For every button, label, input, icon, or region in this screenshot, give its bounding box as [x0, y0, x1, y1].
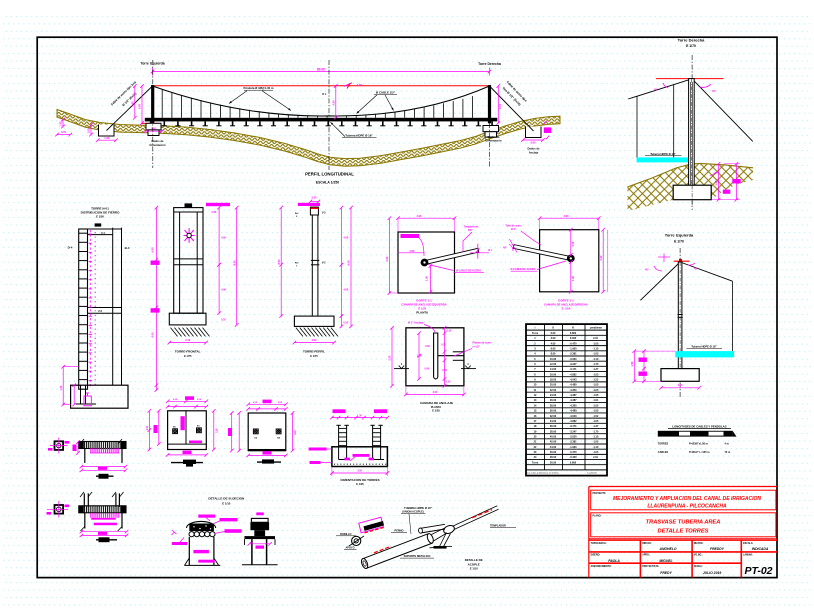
svg-text:20.00: 20.00 [550, 384, 557, 387]
svg-text:ANGHELO: ANGHELO [659, 547, 677, 551]
svg-text:-1.52: -1.52 [593, 415, 599, 418]
svg-text:D L: D L [322, 92, 327, 96]
svg-text:Cimentación: Cimentación [149, 143, 165, 147]
svg-text:Ref: Ref [295, 263, 299, 265]
svg-text:CIMENTACION DE TORRES: CIMENTACION DE TORRES [340, 478, 379, 482]
svg-text:4.50: 4.50 [331, 100, 335, 106]
svg-text:E 1/75: E 1/75 [310, 354, 318, 358]
svg-text:V-2: V-2 [98, 309, 102, 313]
svg-text:4.00: 4.00 [343, 289, 348, 292]
svg-text:Ø CABLE 1/2": Ø CABLE 1/2" [376, 91, 396, 95]
svg-text:0.400: 0.400 [570, 337, 577, 340]
svg-text:24.00: 24.00 [550, 394, 557, 397]
svg-text:FECHA:: FECHA: [694, 565, 703, 568]
svg-text:2.31: 2.31 [593, 456, 598, 459]
svg-text:4.00: 4.00 [151, 332, 155, 338]
svg-text:-1.05: -1.05 [593, 420, 599, 423]
svg-text:0.800: 0.800 [570, 461, 577, 464]
svg-text:2.00: 2.00 [386, 256, 389, 261]
svg-text:E 1/10: E 1/10 [470, 566, 478, 570]
svg-text:34.00: 34.00 [550, 420, 557, 423]
svg-text:38.00: 38.00 [550, 430, 557, 433]
svg-text:4.50: 4.50 [221, 237, 226, 240]
svg-text:-1.900: -1.900 [569, 446, 577, 449]
svg-text:PROYECTO:: PROYECTO: [593, 493, 607, 495]
svg-text:4.50: 4.50 [343, 237, 348, 240]
svg-text:-4.387: -4.387 [569, 394, 577, 397]
svg-text:8.50: 8.50 [232, 260, 236, 266]
svg-text:2.00: 2.00 [417, 215, 422, 218]
svg-text:-1.27: -1.27 [593, 425, 599, 428]
svg-text:Anclaje: Anclaje [529, 150, 539, 154]
svg-text:1.00: 1.00 [417, 355, 422, 358]
svg-text:-1.10: -1.10 [593, 347, 599, 350]
svg-text:V-1: V-1 [101, 231, 105, 235]
svg-text:0.30: 0.30 [211, 211, 216, 214]
svg-text:DETALLE DE SUJECION: DETALLE DE SUJECION [208, 497, 245, 501]
svg-text:45°: 45° [645, 268, 649, 272]
svg-text:1.20: 1.20 [104, 136, 110, 140]
svg-text:46.00: 46.00 [550, 451, 557, 454]
svg-text:-0.470: -0.470 [569, 451, 577, 454]
svg-text:Platina de acero: Platina de acero [473, 342, 493, 345]
svg-text:E: 1/50: E: 1/50 [562, 307, 571, 311]
svg-text:CORTE 1-1: CORTE 1-1 [416, 298, 432, 302]
svg-text:-1.05: -1.05 [593, 389, 599, 392]
svg-text:REVISO:: REVISO: [694, 543, 704, 545]
svg-text:4.50: 4.50 [357, 83, 363, 87]
svg-text:-4.480: -4.480 [569, 384, 577, 387]
svg-text:0.00: 0.00 [551, 332, 556, 335]
svg-text:5.00: 5.00 [498, 103, 502, 109]
svg-text:1.30: 1.30 [357, 415, 362, 418]
svg-text:22.00: 22.00 [550, 389, 557, 392]
svg-text:-1.05: -1.05 [593, 384, 599, 387]
svg-text:40.00: 40.00 [550, 435, 557, 438]
svg-text:-0.400: -0.400 [569, 456, 577, 459]
svg-text:APRO.:: APRO.: [642, 554, 650, 557]
svg-text:Torre Derecha: Torre Derecha [678, 37, 706, 42]
svg-text:0.20: 0.20 [446, 381, 451, 384]
svg-text:0.55: 0.55 [221, 320, 226, 322]
svg-text:-1.10: -1.10 [593, 435, 599, 438]
svg-text:Cimentación: Cimentación [485, 139, 501, 143]
svg-text:2.00: 2.00 [312, 339, 317, 342]
svg-text:-4.350: -4.350 [569, 404, 577, 407]
svg-text:-3.171: -3.171 [569, 425, 577, 428]
svg-text:TORRES: TORRES [658, 442, 669, 445]
svg-text:1.00: 1.00 [426, 276, 429, 281]
svg-text:0.75: 0.75 [572, 241, 575, 246]
svg-text:E 1/75: E 1/75 [184, 354, 192, 358]
svg-text:-1.70: -1.70 [593, 363, 599, 366]
svg-text:CAMARA DE ANCLAJE IZQUIERDA: CAMARA DE ANCLAJE IZQUIERDA [401, 303, 446, 307]
svg-text:2.10: 2.10 [185, 339, 190, 342]
svg-text:CORTE 1-1: CORTE 1-1 [558, 298, 574, 302]
svg-text:-1.01: -1.01 [593, 399, 599, 402]
svg-text:45°: 45° [503, 245, 507, 249]
svg-text:48.00: 48.00 [550, 456, 557, 459]
svg-text:45°: 45° [694, 267, 698, 271]
svg-text:LONGITUDES DE CABLES Y PENDOLA: LONGITUDES DE CABLES Y PENDOLAS [672, 425, 726, 429]
svg-text:-0.470: -0.470 [569, 342, 577, 345]
svg-text:-1.70: -1.70 [593, 430, 599, 433]
svg-text:TRASVASE TUBERIA AREA: TRASVASE TUBERIA AREA [646, 520, 721, 526]
svg-text:32.00: 32.00 [550, 415, 557, 418]
svg-text:TORRE-FRONTAL: TORRE-FRONTAL [175, 350, 201, 354]
svg-text:PLANTA: PLANTA [431, 405, 441, 409]
svg-text:ESCALA 1/250: ESCALA 1/250 [316, 180, 339, 184]
svg-text:18.00: 18.00 [550, 379, 557, 382]
svg-text:Lo=50.00: Lo=50.00 [587, 472, 597, 474]
svg-text:5/8": 5/8" [468, 229, 472, 232]
svg-text:-1.10: -1.10 [593, 446, 599, 449]
svg-text:1.50: 1.50 [60, 121, 63, 126]
svg-text:P=Ø3/8"x1.80 m: P=Ø3/8"x1.80 m [689, 442, 709, 445]
svg-text:2.31: 2.31 [593, 337, 598, 340]
svg-text:2.00: 2.00 [600, 255, 603, 260]
svg-text:-3.247: -3.247 [569, 363, 577, 366]
svg-text:-1.05: -1.05 [593, 404, 599, 407]
svg-text:Dados de: Dados de [151, 139, 164, 143]
svg-text:INDICADA: INDICADA [752, 547, 769, 551]
svg-text:VO.BO.:: VO.BO.: [694, 555, 703, 557]
svg-text:-4.480: -4.480 [569, 410, 577, 413]
svg-text:SOPORTE METALICO: SOPORTE METALICO [404, 554, 431, 558]
svg-text:-3.247: -3.247 [569, 430, 577, 433]
svg-text:-1.27: -1.27 [593, 368, 599, 371]
svg-text:70 m: 70 m [725, 451, 731, 454]
svg-text:6.00: 6.00 [551, 347, 556, 350]
svg-text:E 1/10: E 1/10 [222, 501, 231, 505]
svg-text:E 1/70: E 1/70 [674, 240, 684, 244]
svg-text:0.60: 0.60 [424, 367, 429, 370]
svg-text:Ø 1" Anclaje: Ø 1" Anclaje [408, 321, 424, 325]
svg-text:LAMINA:: LAMINA: [743, 554, 753, 557]
svg-text:1.90: 1.90 [216, 428, 218, 433]
svg-text:JULIO 2019: JULIO 2019 [703, 571, 722, 575]
svg-text:-1.05: -1.05 [593, 410, 599, 413]
svg-text:DISEÑO:: DISEÑO: [591, 554, 601, 557]
svg-text:TUBERIA HDPE Ø 16": TUBERIA HDPE Ø 16" [404, 506, 433, 510]
svg-text:2.00: 2.00 [564, 215, 569, 218]
svg-text:PERFIL LONGITUDINAL: PERFIL LONGITUDINAL [305, 172, 354, 177]
svg-text:2.10: 2.10 [678, 384, 683, 387]
svg-text:0.60: 0.60 [425, 345, 430, 348]
svg-text:-4.043: -4.043 [569, 415, 577, 418]
svg-text:-1.05: -1.05 [593, 373, 599, 376]
svg-text:10.00: 10.00 [550, 358, 557, 361]
svg-text:-1.05: -1.05 [593, 342, 599, 345]
svg-text:Tubería HDPE Ø 16": Tubería HDPE Ø 16" [345, 134, 373, 138]
svg-text:44.00: 44.00 [550, 446, 557, 449]
svg-text:D-4: D-4 [68, 246, 73, 250]
svg-text:CAMARA DE ANCLAJE DERECHA: CAMARA DE ANCLAJE DERECHA [544, 303, 588, 307]
svg-text:0.75: 0.75 [442, 369, 447, 372]
svg-text:0.50: 0.50 [61, 131, 66, 134]
svg-text:-4.350: -4.350 [569, 389, 577, 392]
svg-text:-1.05: -1.05 [593, 353, 599, 356]
svg-text:8.50: 8.50 [277, 259, 281, 265]
svg-text:Yi: Yi [572, 326, 575, 330]
svg-text:PAOLA: PAOLA [608, 559, 620, 563]
svg-text:Tubería HDPE Ø 16": Tubería HDPE Ø 16" [650, 152, 676, 156]
svg-text:Las cotas y distancias en metr: Las cotas y distancias en metros [527, 471, 560, 474]
svg-text:4.50: 4.50 [151, 247, 155, 253]
svg-text:CAMARA DE ANCLAJE: CAMARA DE ANCLAJE [420, 401, 453, 405]
svg-text:28.00: 28.00 [550, 404, 557, 407]
svg-text:Ø 4": Ø 4" [511, 228, 516, 231]
svg-text:(UNION ACOPLE): (UNION ACOPLE) [402, 510, 424, 514]
svg-text:2.00: 2.00 [357, 470, 362, 473]
svg-text:-4.387: -4.387 [569, 399, 577, 402]
svg-text:DETALLE TORRES: DETALLE TORRES [658, 529, 709, 535]
svg-text:E 1/70: E 1/70 [686, 44, 696, 48]
svg-text:DIBUJO:: DIBUJO: [642, 543, 652, 545]
svg-text:DISTRIBUCION DE FIERRO: DISTRIBUCION DE FIERRO [81, 210, 121, 214]
svg-text:pendiente: pendiente [590, 327, 602, 330]
svg-text:0.60: 0.60 [410, 250, 415, 253]
svg-text:50.00: 50.00 [550, 461, 557, 464]
svg-text:PLANTA: PLANTA [416, 310, 429, 314]
svg-text:-4.043: -4.043 [569, 379, 577, 382]
svg-text:12.00: 12.00 [550, 363, 557, 366]
svg-text:80.00: 80.00 [317, 67, 325, 71]
svg-text:TORRE-PERFIL: TORRE-PERFIL [303, 350, 325, 354]
svg-text:45°: 45° [712, 89, 716, 93]
svg-text:8.00: 8.00 [551, 353, 556, 356]
svg-text:ESCALA:: ESCALA: [743, 542, 753, 545]
svg-text:2.00: 2.00 [551, 337, 556, 340]
svg-text:Péndola Ø 3/8@1.00 m: Péndola Ø 3/8@1.00 m [244, 86, 274, 90]
svg-text:FREDY: FREDY [660, 571, 672, 575]
svg-text:Ref: Ref [295, 213, 299, 215]
svg-text:TEMPLADOR: TEMPLADOR [490, 525, 506, 528]
svg-text:0.55: 0.55 [344, 323, 349, 325]
svg-text:-1.05: -1.05 [593, 394, 599, 397]
svg-text:TOPOGRAFIA:: TOPOGRAFIA: [591, 542, 607, 545]
svg-text:RODILLO: RODILLO [340, 533, 351, 536]
svg-text:0.30: 0.30 [312, 197, 317, 200]
svg-text:Ø CABLE DE ACERO: Ø CABLE DE ACERO [456, 270, 481, 273]
svg-text:36.00: 36.00 [550, 425, 557, 428]
svg-text:X: X [552, 326, 554, 330]
svg-text:-1.10: -1.10 [593, 358, 599, 361]
svg-text:4.00: 4.00 [551, 342, 556, 345]
svg-text:Torre Derecha: Torre Derecha [478, 62, 501, 66]
svg-text:5.00: 5.00 [138, 103, 142, 109]
svg-text:2.00: 2.00 [433, 391, 438, 394]
svg-text:1.50: 1.50 [60, 385, 63, 390]
svg-text:1.00: 1.00 [572, 276, 575, 281]
svg-text:0.30: 0.30 [447, 329, 452, 332]
svg-text:B-4: B-4 [125, 246, 130, 250]
svg-text:1.90: 1.90 [295, 430, 297, 435]
svg-text:PLANO:: PLANO: [593, 515, 602, 518]
svg-text:E 1/25: E 1/25 [432, 408, 440, 412]
svg-text:-4.882: -4.882 [569, 420, 577, 423]
svg-text:PERNO: PERNO [395, 530, 404, 533]
svg-text:1.00: 1.00 [87, 128, 91, 134]
svg-text:-2.381: -2.381 [569, 441, 577, 444]
svg-text:1.90: 1.90 [147, 425, 149, 430]
svg-text:4.50: 4.50 [130, 101, 134, 107]
svg-text:-3.020: -3.020 [569, 435, 577, 438]
svg-text:APOYO: APOYO [345, 547, 354, 550]
svg-text:Torre Izquierda: Torre Izquierda [665, 232, 694, 237]
svg-text:0.80: 0.80 [531, 142, 536, 145]
svg-text:PROYECTISTA:: PROYECTISTA: [642, 565, 659, 568]
svg-text:e=1/2": e=1/2" [473, 345, 481, 348]
svg-text:Torre: Torre [532, 461, 539, 464]
svg-text:-1.900: -1.900 [569, 347, 577, 350]
svg-text:1.50: 1.50 [631, 361, 634, 366]
svg-text:FREDDY: FREDDY [710, 547, 725, 551]
svg-text:Torre: Torre [532, 332, 539, 335]
svg-text:9.05: 9.05 [347, 260, 351, 266]
svg-text:Dados de: Dados de [527, 147, 540, 151]
svg-text:1.20: 1.20 [715, 180, 718, 185]
svg-text:Dados de: Dados de [487, 135, 500, 139]
svg-text:16.00: 16.00 [550, 373, 557, 376]
svg-text:-3.171: -3.171 [569, 368, 577, 371]
svg-text:Tubería HDPE Ø 16": Tubería HDPE Ø 16" [691, 345, 717, 349]
svg-text:P=Ø1/2" L=135 m: P=Ø1/2" L=135 m [689, 451, 710, 454]
svg-text:ASESORAMIENTO:: ASESORAMIENTO: [591, 565, 612, 568]
svg-text:LLAURENPUNA - PILCOCANCHA: LLAURENPUNA - PILCOCANCHA [647, 504, 727, 510]
svg-text:ACOPLE: ACOPLE [468, 562, 480, 566]
svg-text:42.00: 42.00 [550, 441, 557, 444]
svg-text:30.00: 30.00 [550, 410, 557, 413]
svg-text:-1.05: -1.05 [593, 441, 599, 444]
svg-text:MIGUEL: MIGUEL [659, 559, 672, 563]
svg-text:45°: 45° [654, 88, 658, 92]
svg-text:2.00: 2.00 [389, 355, 392, 360]
svg-text:4.00: 4.00 [221, 289, 226, 292]
svg-text:-3.020: -3.020 [569, 358, 577, 361]
svg-text:14.00: 14.00 [550, 368, 557, 371]
svg-text:E 1/25: E 1/25 [356, 482, 364, 486]
svg-text:-2.381: -2.381 [569, 353, 577, 356]
svg-text:MEJORAMIENTO Y AMPLIACION DEL: MEJORAMIENTO Y AMPLIACION DEL CANAL DE I… [613, 496, 761, 502]
svg-text:CABLES: CABLES [658, 451, 669, 454]
svg-text:E 1/50: E 1/50 [96, 214, 104, 218]
svg-text:0.800: 0.800 [570, 332, 577, 335]
svg-text:PT-02: PT-02 [744, 565, 772, 577]
svg-text:Ø CABLE DE ACERO: Ø CABLE DE ACERO [510, 268, 535, 271]
svg-text:0.80: 0.80 [151, 128, 156, 131]
svg-text:-1.05: -1.05 [593, 451, 599, 454]
svg-text:26.00: 26.00 [550, 399, 557, 402]
svg-text:-4.882: -4.882 [569, 373, 577, 376]
svg-text:0.75: 0.75 [441, 343, 446, 346]
svg-text:-1.52: -1.52 [593, 379, 599, 382]
